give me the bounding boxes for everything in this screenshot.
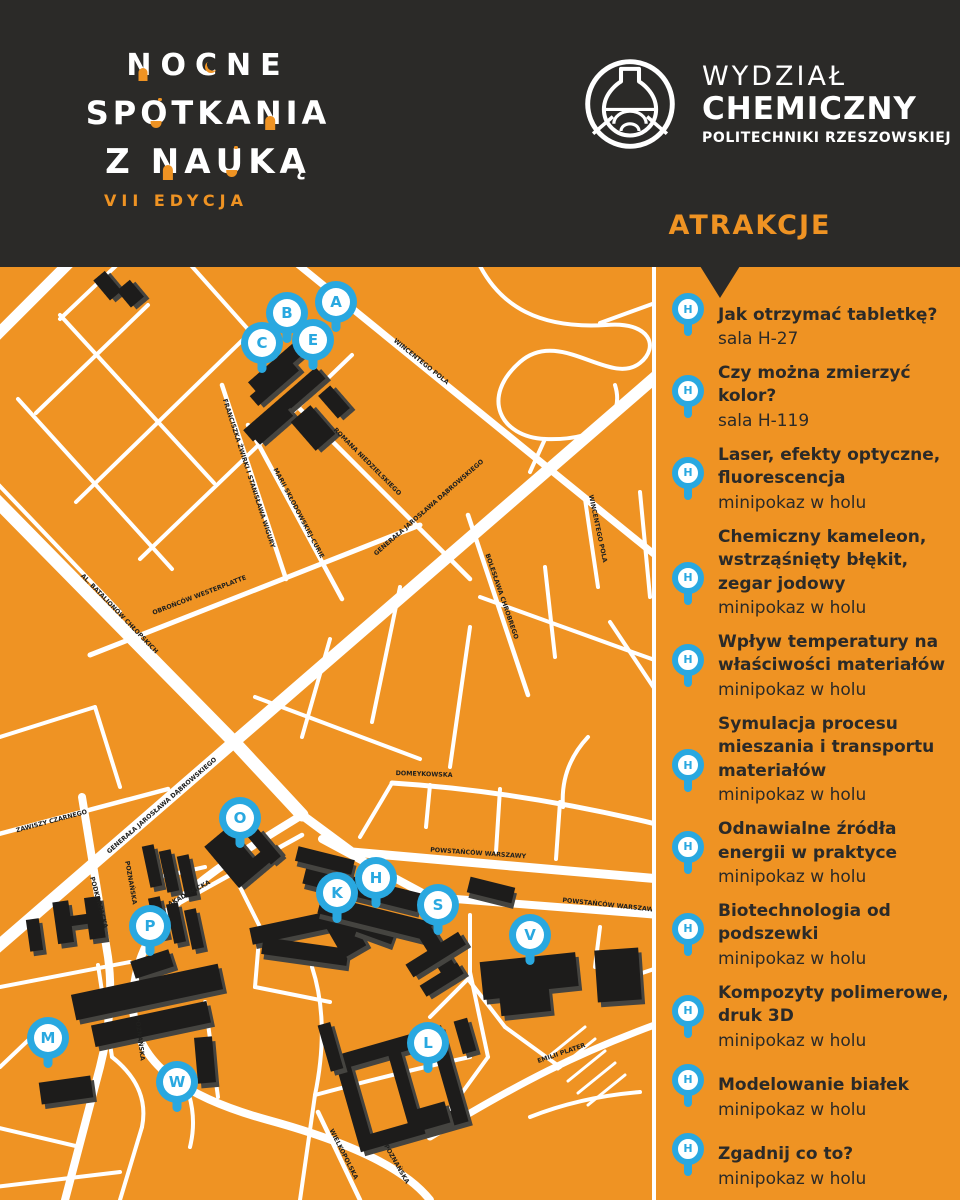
h-pin-icon: H: [672, 1133, 704, 1179]
logo-line-3: ZNAUKĄ: [68, 142, 348, 182]
attraction-title: Odnawialne źródła energii w praktyce: [718, 818, 897, 865]
h-pin-icon: H: [672, 644, 704, 690]
h-pin-icon: H: [672, 457, 704, 503]
svg-text:V: V: [524, 926, 536, 944]
h-pin-icon: H: [672, 1064, 704, 1110]
h-pin-icon: H: [672, 562, 704, 608]
svg-text:O: O: [234, 809, 247, 827]
list-item: H Odnawialne źródła energii w praktyce m…: [670, 818, 952, 889]
svg-text:A: A: [330, 293, 342, 311]
attraction-location: sala H-27: [716, 328, 952, 351]
attraction-title: Symulacja procesu mieszania i transportu…: [718, 713, 934, 783]
attractions-list: H Jak otrzymać tabletkę? sala H-27 H Czy…: [656, 267, 960, 1200]
h-pin-icon: H: [672, 749, 704, 795]
flask-logo-icon: [576, 50, 684, 158]
svg-text:M: M: [41, 1029, 56, 1047]
list-item: H Modelowanie białek minipokaz w holu: [670, 1064, 952, 1122]
attraction-title: Zgadnij co to?: [718, 1143, 853, 1166]
svg-text:E: E: [308, 331, 318, 349]
attraction-location: minipokaz w holu: [716, 597, 952, 620]
event-poster: NOCNE SPOTKANIA ZNAUKĄ VII EDYCJA WYDZIA…: [0, 0, 960, 1200]
attraction-title: Wpływ temperatury na właściwości materia…: [718, 631, 945, 678]
attraction-location: minipokaz w holu: [716, 679, 952, 702]
campus-map: AL. BATALIONÓW CHŁOPSKICH GENERAŁA JAROS…: [0, 267, 656, 1200]
attraction-title: Czy można zmierzyć kolor?: [718, 362, 952, 409]
list-item: H Zgadnij co to? minipokaz w holu: [670, 1133, 952, 1191]
attraction-location: minipokaz w holu: [716, 492, 952, 515]
logo-line-2: SPOTKANIA: [68, 94, 348, 132]
h-pin-icon: H: [672, 375, 704, 421]
faculty-name: WYDZIAŁ CHEMICZNY POLITECHNIKI RZESZOWSK…: [702, 62, 951, 147]
attraction-title: Jak otrzymać tabletkę?: [718, 304, 937, 327]
svg-text:W: W: [169, 1073, 186, 1091]
attraction-location: minipokaz w holu: [716, 1030, 952, 1053]
edition-label: VII EDYCJA: [104, 191, 348, 210]
attraction-title: Laser, efekty optyczne, fluorescencja: [718, 444, 940, 491]
attraction-title: Biotechnologia od podszewki: [718, 900, 891, 947]
attraction-location: minipokaz w holu: [716, 1168, 952, 1191]
attraction-location: minipokaz w holu: [716, 1099, 952, 1122]
h-pin-icon: H: [672, 913, 704, 959]
attractions-pointer: [700, 266, 740, 298]
list-item: H Czy można zmierzyć kolor? sala H-119: [670, 362, 952, 433]
svg-text:C: C: [256, 334, 267, 352]
svg-text:S: S: [433, 896, 444, 914]
logo-line-1: NOCNE: [68, 48, 348, 83]
svg-text:L: L: [423, 1034, 433, 1052]
list-item: H Laser, efekty optyczne, fluorescencja …: [670, 444, 952, 515]
list-item: H Wpływ temperatury na właściwości mater…: [670, 631, 952, 702]
attraction-title: Modelowanie białek: [718, 1074, 909, 1097]
header: NOCNE SPOTKANIA ZNAUKĄ VII EDYCJA WYDZIA…: [0, 0, 960, 267]
svg-text:B: B: [281, 304, 292, 322]
faculty-logo-block: WYDZIAŁ CHEMICZNY POLITECHNIKI RZESZOWSK…: [576, 50, 951, 158]
attraction-location: minipokaz w holu: [716, 866, 952, 889]
attraction-title: Chemiczny kameleon, wstrząśnięty błękit,…: [718, 526, 926, 596]
list-item: H Biotechnologia od podszewki minipokaz …: [670, 900, 952, 971]
h-pin-icon: H: [672, 831, 704, 877]
attraction-title: Kompozyty polimerowe, druk 3D: [718, 982, 949, 1029]
svg-text:H: H: [370, 869, 383, 887]
list-item: H Chemiczny kameleon, wstrząśnięty błęki…: [670, 526, 952, 620]
list-item: H Symulacja procesu mieszania i transpor…: [670, 713, 952, 807]
h-pin-icon: H: [672, 995, 704, 1041]
list-item: H Jak otrzymać tabletkę? sala H-27: [670, 293, 952, 351]
attractions-heading: ATRAKCJE: [650, 210, 850, 241]
list-item: H Kompozyty polimerowe, druk 3D minipoka…: [670, 982, 952, 1053]
event-logo: NOCNE SPOTKANIA ZNAUKĄ VII EDYCJA: [68, 48, 348, 210]
attraction-location: minipokaz w holu: [716, 784, 952, 807]
svg-text:P: P: [145, 917, 156, 935]
attraction-location: sala H-119: [716, 410, 952, 433]
attraction-location: minipokaz w holu: [716, 948, 952, 971]
svg-text:K: K: [331, 884, 344, 902]
h-pin-icon: H: [672, 293, 704, 339]
